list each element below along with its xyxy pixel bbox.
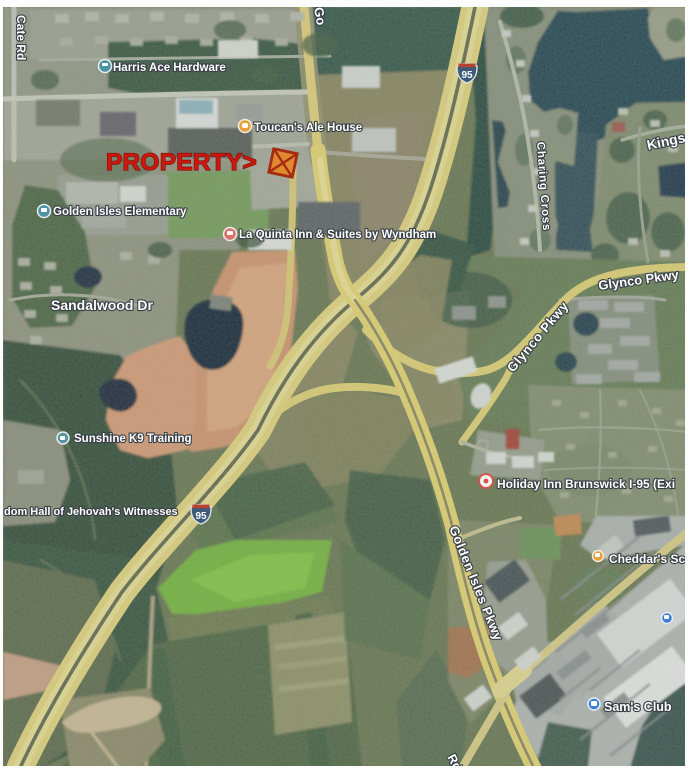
svg-text:PROPERTY>: PROPERTY>: [106, 149, 257, 176]
svg-text:Holiday Inn Brunswick I-95 (Ex: Holiday Inn Brunswick I-95 (Exi: [497, 477, 675, 491]
svg-text:Sam's Club: Sam's Club: [604, 700, 672, 714]
svg-text:La Quinta Inn & Suites by Wynd: La Quinta Inn & Suites by Wyndham: [239, 229, 436, 241]
svg-text:dom Hall of Jehovah's Witnesse: dom Hall of Jehovah's Witnesses: [4, 506, 178, 518]
svg-text:Sunshine K9 Training: Sunshine K9 Training: [74, 433, 192, 445]
svg-text:95: 95: [195, 511, 207, 522]
svg-text:Cate Rd: Cate Rd: [14, 15, 28, 60]
svg-text:Golden Isles Elementary: Golden Isles Elementary: [53, 206, 187, 218]
svg-text:Harris Ace Hardware: Harris Ace Hardware: [113, 62, 226, 74]
svg-text:Sandalwood Dr: Sandalwood Dr: [51, 297, 153, 313]
svg-text:95: 95: [461, 70, 473, 81]
svg-text:Go: Go: [311, 6, 329, 26]
svg-text:Cheddar's Scratc: Cheddar's Scratc: [609, 552, 688, 566]
svg-text:Toucan's Ale House: Toucan's Ale House: [254, 122, 362, 134]
